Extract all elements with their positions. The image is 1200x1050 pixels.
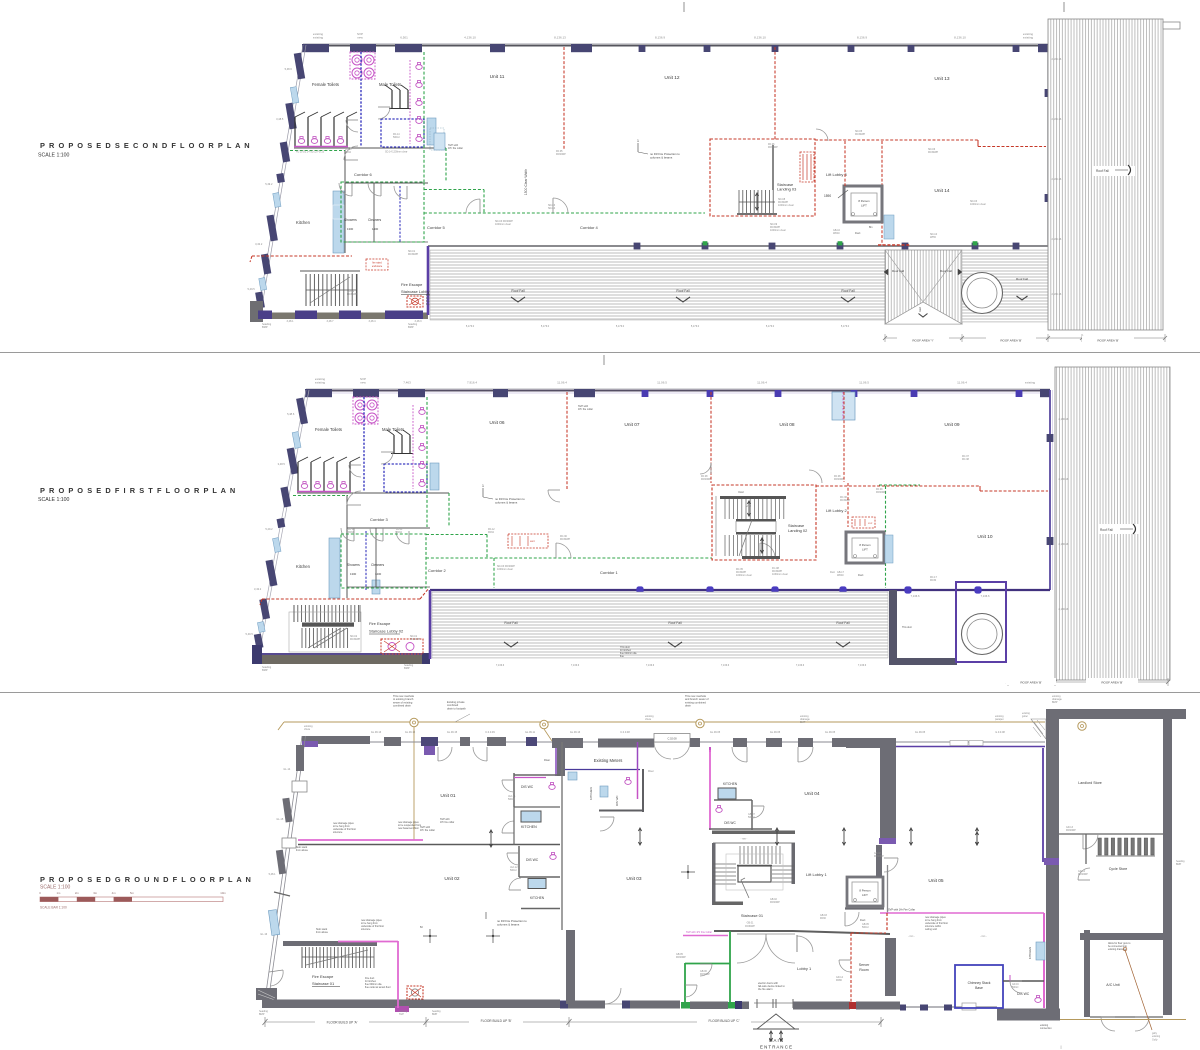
svg-text:1000mm clear: 1000mm clear [970, 203, 986, 206]
svg-text:Lobby 1: Lobby 1 [797, 966, 812, 971]
svg-text:7,136.6: 7,136.6 [858, 664, 867, 667]
svg-text:SVP with 1Hr Fire Collar: SVP with 1Hr Fire Collar [888, 909, 915, 912]
svg-text:Unit 12: Unit 12 [664, 75, 680, 81]
svg-text:1Hr fire collar: 1Hr fire collar [448, 147, 463, 150]
svg-text:3,48.7: 3,48.7 [327, 320, 335, 323]
svg-text:flue outlet at tenant floor: flue outlet at tenant floor [365, 986, 391, 989]
svg-text:1Hr fire collar: 1Hr fire collar [440, 821, 454, 824]
svg-text:FD30WP: FD30WP [1066, 829, 1076, 832]
svg-text:from above: from above [296, 849, 309, 852]
svg-text:P R O P O S E D G R O U N D: P R O P O S E D G R O U N D F L O O R P … [40, 875, 252, 884]
svg-text:5,48.6: 5,48.6 [287, 412, 295, 416]
svg-text:BMP: BMP [404, 666, 410, 670]
svg-text:8 Person: 8 Person [859, 889, 871, 893]
svg-text:Roof Fall: Roof Fall [892, 269, 904, 273]
svg-text:gutter: gutter [1022, 715, 1028, 718]
svg-text:P R O P O S E D S E C O N D: P R O P O S E D S E C O N D F L O O R P … [40, 141, 251, 150]
svg-text:FD30: FD30 [820, 917, 827, 920]
svg-text:1590: 1590 [824, 194, 831, 198]
svg-text:Cycle Store: Cycle Store [1109, 867, 1128, 871]
svg-text:GL.09.05: GL.09.05 [710, 731, 721, 734]
svg-text:FD34: FD34 [345, 151, 352, 154]
svg-text:FD30WP: FD30WP [347, 293, 357, 296]
svg-text:Unit 08: Unit 08 [779, 422, 795, 428]
svg-text:Room: Room [859, 968, 869, 972]
svg-text:5,176.0: 5,176.0 [541, 325, 550, 328]
svg-text:Riser: Riser [544, 758, 550, 762]
svg-text:columns & beams: columns & beams [497, 922, 520, 926]
svg-text:1300: 1300 [350, 572, 357, 576]
svg-text:P R O P O S E D F I R S T: P R O P O S E D F I R S T F L O O R P L … [40, 486, 236, 495]
svg-text:M A I N: M A I N [769, 1038, 783, 1043]
svg-text:SVP: SVP [868, 523, 873, 525]
svg-text:1: 1 [482, 484, 484, 488]
svg-text:new basement floor: new basement floor [398, 827, 419, 830]
svg-text:7,136.6: 7,136.6 [796, 664, 805, 667]
svg-text:Gully: Gully [1152, 1038, 1158, 1041]
svg-text:chute: chute [304, 728, 311, 731]
svg-text:GL.09.13: GL.09.13 [570, 731, 581, 734]
svg-text:Unit 06: Unit 06 [489, 420, 505, 426]
svg-text:500ml: 500ml [393, 136, 400, 139]
svg-text:Unit 05: Unit 05 [928, 878, 944, 884]
svg-text:FLOOR BUILD UP 'B': FLOOR BUILD UP 'B' [481, 1019, 512, 1023]
svg-text:1400: 1400 [372, 227, 379, 231]
svg-text:1300: 1300 [347, 227, 354, 231]
svg-text:GL.09.05: GL.09.05 [770, 731, 781, 734]
svg-text:500ml: 500ml [862, 926, 869, 929]
svg-text:Fire Escape: Fire Escape [401, 282, 423, 287]
svg-text:drain: drain [685, 704, 691, 708]
svg-text:FLOOR BUILD UP 'A': FLOOR BUILD UP 'A' [327, 1021, 358, 1025]
svg-text:from above: from above [316, 931, 329, 934]
svg-text:500ml: 500ml [510, 869, 517, 872]
svg-text:C.0.0.08: C.0.0.08 [620, 731, 630, 734]
svg-text:1500 Clear Width: 1500 Clear Width [524, 169, 528, 195]
svg-text:LIFT: LIFT [862, 893, 868, 897]
svg-text:7,136.6: 7,136.6 [981, 594, 990, 598]
svg-text:FD34: FD34 [396, 531, 403, 534]
svg-text:Fire Escape: Fire Escape [369, 621, 391, 626]
svg-text:Roof Fall: Roof Fall [511, 289, 524, 293]
svg-text:FD30WP: FD30WP [350, 638, 360, 641]
svg-text:SVP: SVP [399, 1013, 404, 1016]
svg-text:5m: 5m [130, 891, 135, 895]
svg-text:Roof Fall: Roof Fall [1016, 277, 1028, 281]
svg-text:LIFT: LIFT [862, 548, 868, 552]
svg-text:Chimney Stack: Chimney Stack [968, 981, 991, 985]
svg-text:Unit 14: Unit 14 [934, 188, 950, 194]
svg-text:Showers: Showers [344, 218, 357, 222]
svg-text:BMP: BMP [1052, 701, 1058, 704]
svg-text:Unit 01: Unit 01 [440, 793, 456, 799]
svg-text:FD30WP: FD30WP [410, 638, 420, 641]
svg-text:Roof Fall: Roof Fall [940, 269, 952, 273]
svg-text:5,48.6: 5,48.6 [285, 67, 293, 71]
svg-text:ROOF AREA 'B': ROOF AREA 'B' [1097, 339, 1119, 343]
svg-text:enclosure: enclosure [372, 265, 383, 268]
svg-text:Landing 02: Landing 02 [788, 528, 807, 533]
svg-text:flue: flue [620, 655, 625, 658]
svg-text:3,48.5: 3,48.5 [278, 462, 286, 466]
svg-text:5,49.5: 5,49.5 [247, 287, 255, 291]
svg-text:5,48.1: 5,48.1 [269, 873, 277, 876]
svg-text:GL.09.05: GL.09.05 [825, 731, 836, 734]
svg-text:FD30WP: FD30WP [874, 855, 884, 858]
svg-text:3,43.2: 3,43.2 [254, 587, 262, 591]
svg-text:GL.14: GL.14 [283, 768, 290, 771]
svg-text:FD34: FD34 [348, 531, 355, 534]
svg-text:GL.09.13: GL.09.13 [371, 731, 382, 734]
svg-text:Cleaners: Cleaners [371, 563, 385, 567]
svg-text:Corridor 3: Corridor 3 [370, 517, 389, 522]
svg-text:5,176.0: 5,176.0 [841, 325, 850, 328]
svg-text:C.0.0.09: C.0.0.09 [485, 731, 495, 734]
svg-text:2,136.16: 2,136.16 [1052, 58, 1062, 61]
svg-text:A/C Unit: A/C Unit [1106, 983, 1119, 987]
svg-text:GL.09.11: GL.09.11 [525, 731, 536, 734]
svg-text:3,48.1: 3,48.1 [287, 320, 295, 323]
svg-text:Corridor 1: Corridor 1 [600, 570, 619, 575]
svg-text:BMP: BMP [408, 325, 414, 329]
svg-text:3,48.3: 3,48.3 [415, 320, 423, 323]
svg-text:FD30WP: FD30WP [855, 133, 865, 136]
svg-text:BMP: BMP [262, 668, 268, 672]
svg-text:FD30WP: FD30WP [768, 146, 778, 149]
svg-text:2,136.16: 2,136.16 [1052, 238, 1062, 241]
svg-text:1030mm clear: 1030mm clear [772, 573, 788, 576]
svg-text:Roof: Roof [919, 307, 922, 312]
svg-text:7,136.6: 7,136.6 [646, 664, 655, 667]
svg-text:8 Person: 8 Person [858, 199, 870, 203]
svg-text:2,136.16: 2,136.16 [1052, 293, 1062, 296]
svg-text:Staircase 01: Staircase 01 [312, 981, 335, 986]
svg-text:2,136.16: 2,136.16 [1059, 543, 1069, 546]
svg-text:structure: structure [333, 831, 343, 834]
svg-text:5,49.2: 5,49.2 [265, 182, 273, 186]
svg-text:Void: Void [738, 490, 744, 494]
svg-text:chute: chute [645, 718, 652, 721]
svg-text:FD30: FD30 [930, 579, 937, 582]
svg-text:Unit 04: Unit 04 [804, 791, 820, 797]
svg-text:Male Toilets: Male Toilets [382, 427, 404, 432]
svg-text:Roof Fall: Roof Fall [676, 289, 689, 293]
svg-text:FD30WP: FD30WP [408, 253, 418, 256]
svg-text:Roof Fall: Roof Fall [841, 289, 854, 293]
svg-text:3,43.2: 3,43.2 [255, 242, 263, 246]
svg-text:LIFT: LIFT [861, 204, 867, 208]
svg-text:FD30WP: FD30WP [928, 151, 938, 154]
svg-text:4,136.10: 4,136.10 [464, 36, 476, 40]
svg-text:8,136.13: 8,136.13 [554, 36, 566, 40]
svg-text:11,06.4: 11,06.4 [757, 381, 767, 385]
svg-text:Riser: Riser [648, 770, 654, 773]
svg-text:Roof Fall: Roof Fall [836, 621, 849, 625]
svg-text:7,463: 7,463 [403, 381, 411, 385]
svg-text:FD30WP: FD30WP [770, 901, 780, 904]
svg-text:ROOF AREA 'Y': ROOF AREA 'Y' [912, 339, 934, 343]
svg-text:GL.09.15: GL.09.15 [447, 731, 458, 734]
svg-text:Roof Fall: Roof Fall [1100, 528, 1113, 532]
svg-text:11,06.4: 11,06.4 [957, 381, 967, 385]
svg-text:columns & beams: columns & beams [495, 500, 518, 504]
svg-text:SCALE 1:100: SCALE 1:100 [40, 885, 71, 891]
svg-text:8,136.9: 8,136.9 [857, 36, 867, 40]
svg-text:Unit 11: Unit 11 [490, 74, 505, 80]
svg-text:FD80: FD80 [836, 979, 843, 982]
svg-text:Roof Fall: Roof Fall [1096, 169, 1109, 173]
svg-text:Void: Void [746, 505, 751, 508]
svg-text:the fire alarm: the fire alarm [758, 988, 773, 991]
svg-text:Female Toilets: Female Toilets [315, 427, 342, 432]
svg-text:11,06.5: 11,06.5 [859, 381, 869, 385]
svg-text:columns & beams: columns & beams [650, 155, 673, 159]
svg-text:Duct: Duct [858, 573, 864, 577]
svg-text:- mm -: - mm - [980, 936, 987, 938]
svg-text:2m: 2m [75, 891, 80, 895]
svg-text:SCALE 1:100: SCALE 1:100 [38, 497, 70, 503]
svg-text:11,06.4: 11,06.4 [557, 381, 567, 385]
svg-text:3m: 3m [93, 891, 98, 895]
svg-text:WD40: WD40 [837, 574, 844, 577]
svg-text:10m: 10m [220, 891, 226, 895]
svg-text:FD30WP: FD30WP [745, 925, 755, 928]
svg-text:Lift Lobby 1: Lift Lobby 1 [806, 872, 827, 877]
svg-text:GL.15: GL.15 [276, 818, 283, 821]
svg-text:Corridor 6: Corridor 6 [354, 172, 373, 177]
svg-text:2,136.16: 2,136.16 [1059, 478, 1069, 481]
svg-text:Duct: Duct [855, 231, 861, 235]
svg-text:5,176.0: 5,176.0 [691, 325, 700, 328]
svg-text:11,06.5: 11,06.5 [657, 381, 667, 385]
svg-text:5,49.5: 5,49.5 [246, 632, 254, 636]
svg-text:BMP: BMP [432, 1013, 438, 1016]
svg-text:Kitchen: Kitchen [296, 220, 311, 225]
svg-text:KITCHEN: KITCHEN [723, 782, 738, 786]
svg-text:7,136.6: 7,136.6 [721, 664, 730, 667]
svg-text:2,136.16: 2,136.16 [1052, 118, 1062, 121]
svg-text:SCALE 1:100: SCALE 1:100 [38, 153, 70, 159]
svg-text:FD.10 D2.14 SD.12 FD.13: FD.10 D2.14 SD.12 FD.13 [296, 151, 325, 154]
svg-text:ceiling void: ceiling void [925, 928, 937, 931]
svg-text:1m: 1m [56, 891, 61, 895]
svg-text:GL.16: GL.16 [260, 933, 267, 936]
svg-text:existing: existing [315, 377, 326, 381]
svg-text:SCALE BAR 1:100: SCALE BAR 1:100 [40, 906, 67, 910]
svg-text:ROOF AREA 'B': ROOF AREA 'B' [1000, 339, 1022, 343]
svg-text:1: 1 [637, 139, 639, 143]
svg-text:Staircase 01: Staircase 01 [741, 913, 764, 918]
svg-text:existing: existing [1023, 32, 1034, 36]
svg-text:Cleaners: Cleaners [368, 218, 382, 222]
svg-text:SVP with 1Hr Fire Collar: SVP with 1Hr Fire Collar [686, 931, 712, 934]
svg-text:E N T R A N C E: E N T R A N C E [760, 1045, 792, 1050]
svg-text:Unit 02: Unit 02 [444, 876, 460, 882]
svg-text:1400: 1400 [375, 572, 382, 576]
svg-text:Corridor 2: Corridor 2 [428, 568, 447, 573]
svg-text:8,136.10: 8,136.10 [754, 36, 766, 40]
svg-text:BMP: BMP [259, 1013, 265, 1016]
svg-text:Lift Lobby 3: Lift Lobby 3 [826, 172, 847, 177]
svg-text:Male Toilets: Male Toilets [379, 82, 401, 87]
svg-text:SVP: SVP [357, 32, 363, 36]
svg-text:Unit 10: Unit 10 [977, 534, 993, 540]
svg-text:Fire Escape: Fire Escape [312, 974, 334, 979]
svg-text:Server: Server [859, 963, 870, 967]
svg-text:parapet: parapet [995, 718, 1004, 721]
svg-text:vent: vent [530, 540, 535, 543]
svg-text:5,49.2: 5,49.2 [265, 527, 273, 531]
svg-text:3,48.5: 3,48.5 [276, 117, 284, 121]
svg-text:Duct: Duct [860, 918, 866, 922]
svg-text:GD.16: GD.16 [1012, 984, 1019, 986]
svg-text:1000mm clear: 1000mm clear [778, 204, 794, 207]
svg-text:FD30WP: FD30WP [876, 491, 886, 494]
svg-text:8 Person: 8 Person [859, 543, 871, 547]
svg-text:500ml: 500ml [508, 798, 515, 801]
svg-text:existing: existing [313, 32, 324, 36]
svg-text:FD30WP: FD30WP [701, 478, 711, 481]
svg-text:Unit 13: Unit 13 [934, 76, 950, 82]
svg-text:GL.09.05: GL.09.05 [915, 731, 926, 734]
svg-text:Roof Fall: Roof Fall [668, 621, 681, 625]
svg-text:8,136.10: 8,136.10 [954, 36, 966, 40]
svg-text:|: | [1060, 1044, 1061, 1049]
svg-text:Staircase Lobby 02: Staircase Lobby 02 [369, 629, 404, 634]
svg-text:Corridor 4: Corridor 4 [580, 225, 599, 230]
svg-text:BMP: BMP [800, 721, 806, 724]
svg-text:SD-04: SD-04 [548, 207, 556, 210]
svg-text:GL.09.13: GL.09.13 [405, 731, 416, 734]
svg-text:KITCHEN: KITCHEN [589, 787, 593, 800]
svg-text:4m: 4m [112, 891, 117, 895]
svg-text:2,136.16: 2,136.16 [1059, 418, 1069, 421]
svg-text:7,136.6: 7,136.6 [496, 664, 505, 667]
svg-text:1000mm clear: 1000mm clear [495, 223, 511, 226]
svg-text:Existing Meters: Existing Meters [594, 758, 623, 763]
svg-text:FD30WP: FD30WP [676, 956, 686, 959]
svg-text:FD30WP: FD30WP [556, 153, 566, 156]
svg-text:1000mm clear: 1000mm clear [736, 574, 752, 577]
svg-text:BMP: BMP [1176, 863, 1182, 866]
svg-text:1Hr fire collar: 1Hr fire collar [578, 408, 593, 411]
svg-text:2,136.16: 2,136.16 [1059, 608, 1069, 611]
svg-text:FD34: FD34 [488, 531, 495, 534]
svg-text:2,136.16: 2,136.16 [1052, 178, 1062, 181]
svg-text:7,136.6: 7,136.6 [911, 594, 920, 598]
svg-text:KITCHEN: KITCHEN [530, 896, 545, 900]
svg-text:DIS WC: DIS WC [724, 821, 736, 825]
svg-text:Kitchen: Kitchen [296, 564, 311, 569]
svg-text:Female Toilets: Female Toilets [312, 82, 339, 87]
svg-text:existing: existing [1025, 381, 1036, 385]
svg-text:KITCHEN: KITCHEN [1028, 947, 1032, 959]
svg-text:1Hr fire collar: 1Hr fire collar [420, 829, 435, 832]
svg-text:Corridor 5: Corridor 5 [427, 225, 446, 230]
svg-text:drain to footpath: drain to footpath [447, 706, 466, 710]
svg-text:Roof Fall: Roof Fall [504, 621, 517, 625]
svg-text:G.0.0.08: G.0.0.08 [995, 731, 1005, 734]
svg-text:BMP: BMP [262, 325, 268, 329]
svg-text:3,48.4: 3,48.4 [369, 320, 377, 323]
svg-text:WHD: WHD [930, 236, 936, 239]
svg-text:Landlord Store: Landlord Store [1078, 781, 1102, 785]
svg-text:ROOF AREA 'B': ROOF AREA 'B' [1101, 681, 1123, 685]
svg-text:KITCHEN: KITCHEN [521, 825, 537, 829]
svg-text:8,136.9: 8,136.9 [655, 36, 665, 40]
svg-text:Unit 09: Unit 09 [944, 422, 960, 428]
svg-text:Unit 03: Unit 03 [626, 876, 642, 882]
svg-text:C.02.08: C.02.08 [667, 737, 677, 741]
svg-text:5,176.0: 5,176.0 [616, 325, 625, 328]
svg-text:7,136.6: 7,136.6 [571, 664, 580, 667]
svg-text:SD.14 1200mm clear: SD.14 1200mm clear [385, 151, 408, 154]
svg-text:5,176.0: 5,176.0 [766, 325, 775, 328]
svg-text:DIS WC: DIS WC [521, 785, 534, 789]
svg-text:Base: Base [975, 986, 983, 990]
svg-text:FLOOR BUILD UP 'C': FLOOR BUILD UP 'C' [709, 1019, 740, 1023]
svg-text:structure: structure [361, 928, 371, 931]
svg-text:5,176.0: 5,176.0 [466, 325, 475, 328]
svg-text:combined drain: combined drain [393, 704, 411, 708]
svg-text:1000mm clear: 1000mm clear [497, 568, 513, 571]
svg-text:Duct: Duct [830, 571, 835, 574]
svg-text:ROOF AREA 'B': ROOF AREA 'B' [1020, 681, 1042, 685]
svg-text:This duct: This duct [902, 626, 912, 629]
svg-text:existing: existing [1022, 712, 1031, 715]
svg-text:FD30WP: FD30WP [840, 499, 850, 502]
svg-text:FD30WP: FD30WP [560, 538, 570, 541]
svg-text:- mm -: - mm - [908, 936, 915, 938]
svg-text:SVP: SVP [360, 377, 366, 381]
svg-text:FD-38: FD-38 [962, 458, 970, 461]
svg-text:Lift Lobby 2: Lift Lobby 2 [826, 508, 847, 513]
svg-text:6,501: 6,501 [400, 36, 408, 40]
svg-text:DIS WC: DIS WC [615, 796, 619, 806]
svg-text:connection: connection [1040, 1027, 1052, 1030]
svg-text:Landing 03: Landing 03 [777, 187, 796, 192]
svg-text:Showers: Showers [347, 563, 360, 567]
svg-text:7,916.4: 7,916.4 [467, 381, 477, 385]
svg-text:FD30WP: FD30WP [834, 478, 844, 481]
svg-text:WD40: WD40 [833, 232, 840, 235]
svg-text:- mm -: - mm - [741, 839, 748, 841]
svg-text:Unit 07: Unit 07 [624, 422, 640, 428]
svg-text:DIS WC: DIS WC [526, 858, 539, 862]
svg-text:1000mm clear: 1000mm clear [770, 229, 786, 232]
